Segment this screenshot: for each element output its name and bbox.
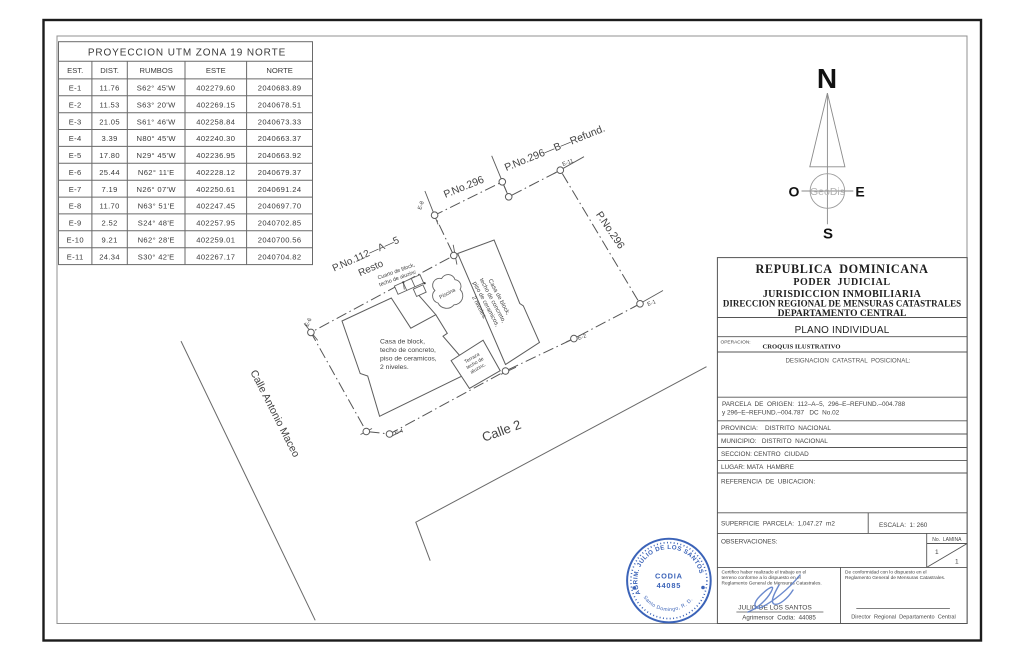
svg-text:11.53: 11.53 — [99, 101, 119, 110]
svg-text:44085: 44085 — [657, 581, 682, 590]
svg-text:402228.12: 402228.12 — [196, 168, 235, 177]
svg-text:24.34: 24.34 — [99, 252, 120, 261]
svg-text:N63° 51'E: N63° 51'E — [138, 202, 175, 211]
svg-text:CODIA: CODIA — [655, 572, 683, 581]
svg-text:2 niveles.: 2 niveles. — [380, 364, 409, 371]
svg-text:REFERENCIA DE UBICACION:: REFERENCIA DE UBICACION: — [721, 479, 815, 486]
svg-text:EST.: EST. — [67, 66, 83, 75]
svg-text:PROVINCIA: DISTRITO NACION: PROVINCIA: DISTRITO NACIONAL — [721, 425, 831, 432]
svg-text:MUNICIPIO: DISTRITO NACIONA: MUNICIPIO: DISTRITO NACIONAL — [721, 438, 828, 445]
svg-text:402258.84: 402258.84 — [196, 117, 235, 126]
svg-text:11.76: 11.76 — [99, 84, 119, 93]
svg-text:E-9: E-9 — [69, 219, 82, 228]
svg-text:2.52: 2.52 — [102, 219, 118, 228]
svg-text:25.44: 25.44 — [99, 168, 120, 177]
svg-text:402240.30: 402240.30 — [196, 134, 235, 143]
svg-text:E-6: E-6 — [69, 168, 82, 177]
svg-text:2040679.37: 2040679.37 — [258, 168, 302, 177]
svg-text:DESIGNACION CATASTRAL POSICI: DESIGNACION CATASTRAL POSICIONAL: — [785, 357, 910, 364]
svg-text:Reglamento General de Mensuras: Reglamento General de Mensuras Catastral… — [722, 581, 822, 587]
svg-text:2040700.56: 2040700.56 — [258, 236, 302, 245]
svg-text:OPERACION:: OPERACION: — [721, 340, 751, 346]
svg-text:O: O — [789, 184, 800, 200]
svg-text:E-2: E-2 — [69, 101, 82, 110]
svg-text:RUMBOS: RUMBOS — [140, 66, 173, 75]
svg-text:E-10: E-10 — [66, 236, 83, 245]
svg-text:N26° 07'W: N26° 07'W — [137, 185, 177, 194]
svg-text:9.21: 9.21 — [102, 236, 118, 245]
svg-text:GeoDis: GeoDis — [810, 186, 845, 198]
svg-text:402236.95: 402236.95 — [196, 151, 235, 160]
svg-text:402247.45: 402247.45 — [196, 202, 235, 211]
svg-text:2040663.37: 2040663.37 — [258, 134, 302, 143]
svg-text:piso de ceramicos,: piso de ceramicos, — [380, 356, 437, 363]
svg-text:De conformidad con lo dispuest: De conformidad con lo dispuesto en el — [845, 570, 927, 576]
svg-text:Certifico haber realizado el t: Certifico haber realizado el trabajo en … — [722, 570, 807, 576]
svg-text:11.70: 11.70 — [99, 202, 119, 211]
svg-text:21.05: 21.05 — [99, 117, 120, 126]
svg-text:terreno conforme a lo dispuest: terreno conforme a lo dispuesto en el — [722, 575, 801, 581]
svg-text:E-8: E-8 — [69, 202, 82, 211]
svg-text:y 296–E–REFUND.–004.787 DC: y 296–E–REFUND.–004.787 DC No.02 — [722, 410, 840, 417]
svg-text:1: 1 — [955, 559, 959, 566]
svg-text:JULIO DE LOS SANTOS: JULIO DE LOS SANTOS — [738, 605, 812, 612]
svg-text:17.80: 17.80 — [99, 151, 120, 160]
svg-text:402259.01: 402259.01 — [196, 236, 235, 245]
svg-text:DIST.: DIST. — [100, 66, 119, 75]
svg-text:CROQUIS ILUSTRATIVO: CROQUIS ILUSTRATIVO — [763, 344, 841, 351]
svg-text:NORTE: NORTE — [266, 66, 292, 75]
svg-text:2040697.70: 2040697.70 — [258, 202, 302, 211]
svg-text:Director Regional Departamen: Director Regional Departamento Central — [851, 615, 955, 621]
svg-text:S24° 48'E: S24° 48'E — [138, 219, 175, 228]
svg-text:Casa de block,: Casa de block, — [380, 339, 425, 346]
svg-text:2040683.89: 2040683.89 — [258, 84, 302, 93]
svg-text:2040702.85: 2040702.85 — [258, 219, 302, 228]
svg-text:E-11: E-11 — [67, 252, 84, 261]
svg-text:402279.60: 402279.60 — [196, 84, 235, 93]
svg-text:ESTE: ESTE — [206, 66, 226, 75]
svg-text:Reglamento General de Mensuras: Reglamento General de Mensuras Catastral… — [845, 575, 945, 581]
svg-text:E-1: E-1 — [69, 84, 82, 93]
svg-text:SUPERFICIE PARCELA: 1,047.27: SUPERFICIE PARCELA: 1,047.27 m2 — [721, 521, 835, 528]
svg-text:LUGAR: MATA HAMBRE: LUGAR: MATA HAMBRE — [721, 464, 794, 471]
svg-text:2040673.33: 2040673.33 — [258, 117, 302, 126]
svg-text:E-4: E-4 — [69, 134, 82, 143]
svg-text:S: S — [823, 226, 833, 243]
svg-text:No. LAMINA: No. LAMINA — [932, 537, 962, 543]
svg-text:OBSERVACIONES:: OBSERVACIONES: — [721, 539, 778, 546]
svg-text:S61° 46'W: S61° 46'W — [137, 117, 176, 126]
svg-text:7.19: 7.19 — [102, 185, 118, 194]
svg-text:PODER JUDICIAL: PODER JUDICIAL — [793, 277, 890, 288]
svg-text:3.39: 3.39 — [102, 134, 118, 143]
svg-text:S62° 45'W: S62° 45'W — [137, 84, 176, 93]
svg-text:2040663.92: 2040663.92 — [258, 151, 302, 160]
svg-text:Agrimensor Codia: 44085: Agrimensor Codia: 44085 — [742, 615, 816, 622]
svg-text:E-5: E-5 — [69, 151, 82, 160]
svg-text:S30° 42'E: S30° 42'E — [138, 252, 175, 261]
svg-text:2040678.51: 2040678.51 — [258, 101, 302, 110]
svg-text:S63° 20'W: S63° 20'W — [137, 101, 176, 110]
svg-text:PROYECCION UTM ZONA 19 NORTE: PROYECCION UTM ZONA 19 NORTE — [88, 48, 286, 59]
svg-text:PARCELA DE ORIGEN: 112–A–5,: PARCELA DE ORIGEN: 112–A–5, 296–E–REFUND… — [722, 401, 905, 408]
svg-text:E: E — [855, 184, 864, 200]
svg-text:2040691.24: 2040691.24 — [258, 185, 302, 194]
svg-text:SECCION: CENTRO CIUDAD: SECCION: CENTRO CIUDAD — [721, 451, 809, 458]
svg-text:402269.15: 402269.15 — [196, 101, 235, 110]
svg-text:402267.17: 402267.17 — [196, 252, 235, 261]
svg-text:E-3: E-3 — [69, 117, 82, 126]
svg-text:DIRECCION REGIONAL DE MENSURAS: DIRECCION REGIONAL DE MENSURAS CATASTRAL… — [723, 299, 961, 309]
svg-text:E-7: E-7 — [69, 185, 82, 194]
svg-text:N62° 28'E: N62° 28'E — [138, 236, 175, 245]
svg-text:techo de concreto,: techo de concreto, — [380, 347, 436, 354]
svg-text:N: N — [817, 63, 837, 94]
svg-text:402250.61: 402250.61 — [196, 185, 235, 194]
svg-text:1: 1 — [935, 549, 939, 556]
svg-text:2040704.82: 2040704.82 — [258, 252, 302, 261]
svg-text:N80° 45'W: N80° 45'W — [137, 134, 177, 143]
svg-text:REPUBLICA DOMINICANA: REPUBLICA DOMINICANA — [755, 262, 928, 276]
svg-text:ESCALA: 1: 260: ESCALA: 1: 260 — [879, 522, 928, 529]
svg-text:N62° 11'E: N62° 11'E — [138, 168, 175, 177]
svg-text:DEPARTAMENTO CENTRAL: DEPARTAMENTO CENTRAL — [778, 309, 907, 319]
svg-text:N29° 45'W: N29° 45'W — [137, 151, 177, 160]
svg-text:402257.95: 402257.95 — [196, 219, 235, 228]
svg-text:PLANO INDIVIDUAL: PLANO INDIVIDUAL — [795, 325, 890, 336]
